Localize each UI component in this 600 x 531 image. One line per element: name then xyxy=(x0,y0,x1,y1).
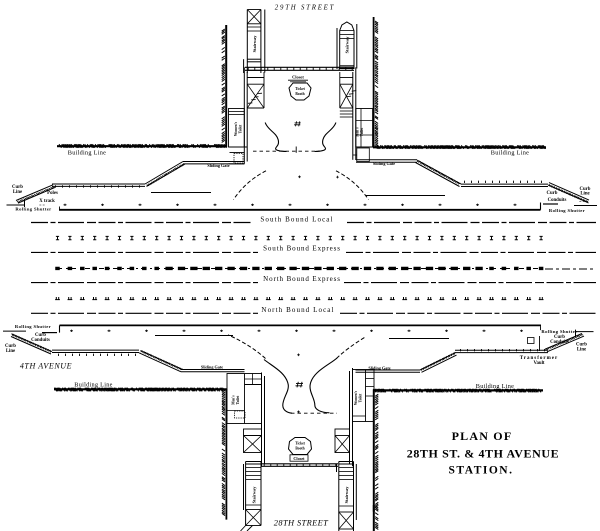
svg-text:Rolling Shutter: Rolling Shutter xyxy=(15,206,51,211)
svg-text:STATION.: STATION. xyxy=(449,465,514,477)
svg-text:Booth: Booth xyxy=(295,92,304,96)
svg-text:Rolling Shutter: Rolling Shutter xyxy=(541,329,577,334)
svg-text:Building Line: Building Line xyxy=(74,382,112,389)
svg-text:Building Line: Building Line xyxy=(491,150,529,157)
svg-text:Men's: Men's xyxy=(232,395,236,405)
svg-text:Building Line: Building Line xyxy=(68,150,106,157)
svg-text:North Bound Local: North Bound Local xyxy=(261,306,334,314)
svg-text:Toilet: Toilet xyxy=(236,395,240,404)
svg-text:Line: Line xyxy=(6,349,15,354)
svg-text:Stairway: Stairway xyxy=(344,486,349,504)
svg-text:Toilet: Toilet xyxy=(239,124,243,133)
svg-text:Conduits: Conduits xyxy=(31,338,50,343)
svg-text:28TH ST. & 4TH AVENUE: 28TH ST. & 4TH AVENUE xyxy=(407,447,560,461)
svg-text:Ticket: Ticket xyxy=(295,87,306,91)
svg-text:Toilet: Toilet xyxy=(360,127,364,136)
svg-text:PLAN OF: PLAN OF xyxy=(452,429,513,443)
svg-text:Line: Line xyxy=(577,347,586,352)
svg-text:Curb: Curb xyxy=(547,191,558,196)
svg-text:Booth: Booth xyxy=(295,446,304,450)
svg-text:South Bound Express: South Bound Express xyxy=(263,244,341,252)
svg-text:Ticket: Ticket xyxy=(295,442,306,446)
svg-text:Line: Line xyxy=(13,190,22,195)
svg-text:Sliding Gate: Sliding Gate xyxy=(373,161,395,166)
svg-text:28TH STREET: 28TH STREET xyxy=(274,519,329,528)
svg-text:Women's: Women's xyxy=(354,390,358,405)
svg-text:Closet: Closet xyxy=(293,456,305,461)
svg-text:Sliding Gate: Sliding Gate xyxy=(207,163,229,168)
svg-text:Conduits: Conduits xyxy=(548,198,567,203)
svg-text:Sliding Gate: Sliding Gate xyxy=(368,365,390,370)
svg-text:Sliding Gate: Sliding Gate xyxy=(201,364,223,369)
svg-text:Building Line: Building Line xyxy=(476,383,514,390)
svg-text:= =: = = xyxy=(579,199,585,204)
svg-text:Women's: Women's xyxy=(234,121,238,136)
svg-text:Stairway: Stairway xyxy=(345,36,350,54)
svg-text:Stairway: Stairway xyxy=(252,486,257,504)
svg-text:Line: Line xyxy=(580,192,589,197)
svg-text:29TH STREET: 29TH STREET xyxy=(275,5,335,12)
svg-text:Men's: Men's xyxy=(356,127,360,137)
svg-text:Closet: Closet xyxy=(292,75,304,80)
svg-text:Toilet: Toilet xyxy=(359,393,363,402)
svg-text:Rolling Shutter: Rolling Shutter xyxy=(549,208,585,213)
svg-text:Vault: Vault xyxy=(533,361,544,366)
svg-text:Poles: Poles xyxy=(47,191,58,196)
svg-text:Conduits: Conduits xyxy=(550,340,569,345)
svg-text:Rolling Shutter: Rolling Shutter xyxy=(15,324,51,329)
svg-text:Stairway: Stairway xyxy=(252,35,257,53)
svg-text:North Bound Express: North Bound Express xyxy=(263,275,341,283)
svg-text:4TH AVENUE: 4TH AVENUE xyxy=(20,362,72,371)
svg-text:South Bound Local: South Bound Local xyxy=(260,216,333,224)
